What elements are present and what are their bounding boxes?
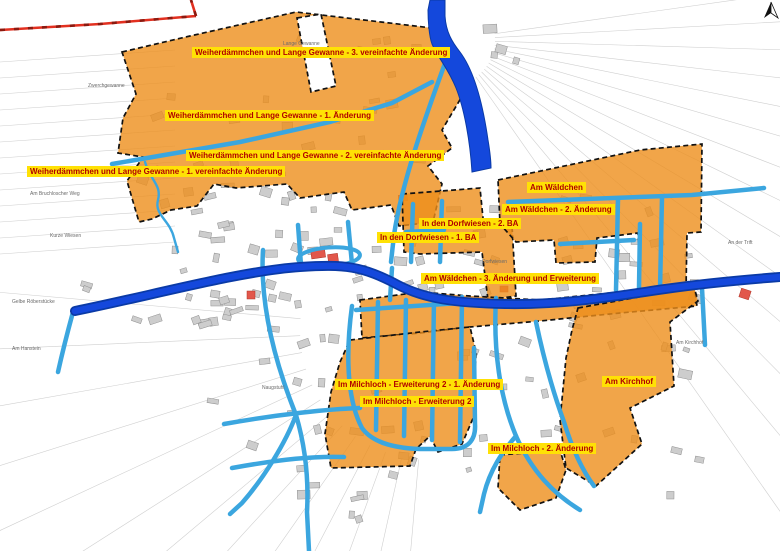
building	[694, 456, 704, 463]
place-label-kurze-wiesen: Kurze Wiesen	[50, 233, 81, 239]
building	[131, 316, 142, 324]
place-label-zwerchgewanne: Zwerchgewanne	[88, 83, 125, 89]
building	[210, 290, 220, 298]
zone-label-weiherdaemmchen-2-vereinfachte: Weiherdämmchen und Lange Gewanne - 2. ve…	[186, 150, 444, 161]
building	[388, 470, 398, 479]
zone-label-am-waeldchen-3: Am Wäldchen - 3. Änderung und Erweiterun…	[421, 273, 599, 284]
place-label-dorfwiesen: Dorfwiesen	[482, 259, 507, 265]
building	[491, 52, 498, 59]
building	[309, 482, 320, 488]
north-arrow-icon	[764, 2, 778, 18]
building	[518, 336, 531, 347]
building	[683, 347, 690, 353]
building	[463, 448, 471, 457]
building	[415, 256, 425, 266]
zone-label-weiherdaemmchen-3-vereinfachte: Weiherdämmchen und Lange Gewanne - 3. ve…	[192, 47, 450, 58]
building	[199, 231, 212, 239]
building	[313, 424, 321, 434]
building	[320, 334, 326, 342]
zone-label-am-kirchhof: Am Kirchhof	[602, 376, 656, 387]
building	[211, 237, 225, 243]
zone-label-dorfwiesen-1-ba: In den Dorfwiesen - 1. BA	[377, 232, 479, 243]
zone-label-am-waeldchen-2: Am Wäldchen - 2. Änderung	[502, 204, 615, 215]
place-label-bruchloscher-weg: Am Bruchloscher Weg	[30, 191, 80, 197]
building	[297, 338, 310, 349]
building	[325, 306, 332, 312]
building	[483, 24, 497, 33]
zone-am-waeldchen	[498, 144, 702, 290]
building	[355, 515, 363, 524]
building	[292, 377, 302, 386]
building	[394, 257, 407, 266]
building	[328, 334, 339, 344]
building	[678, 369, 693, 380]
building	[148, 314, 162, 325]
zone-label-weiherdaemmchen-1-aenderung: Weiherdämmchen und Lange Gewanne - 1. Än…	[165, 110, 374, 121]
zone-label-weiherdaemmchen-1-vereinfachte: Weiherdämmchen und Lange Gewanne - 1. ve…	[27, 166, 285, 177]
red-boundary-line	[0, 0, 196, 30]
zone-im-milchloch-2	[498, 450, 566, 510]
building	[512, 57, 519, 65]
zone-label-milchloch-2: Im Milchloch - 2. Änderung	[488, 443, 596, 454]
building	[248, 244, 260, 255]
building	[275, 230, 282, 238]
building	[246, 305, 259, 310]
building	[279, 292, 292, 302]
zone-label-milchloch-erw2: Im Milchloch - Erweiterung 2	[360, 396, 474, 407]
building	[618, 271, 626, 280]
building	[264, 279, 276, 290]
building	[334, 228, 342, 233]
building	[180, 268, 188, 274]
building	[349, 511, 355, 519]
place-label-an-der-trift: An der Trift	[728, 240, 752, 246]
place-label-am-kirchhof-klein: Am Kirchhof	[676, 340, 703, 346]
building	[333, 206, 347, 216]
building	[352, 276, 363, 284]
building	[466, 467, 472, 473]
building	[318, 378, 325, 387]
building	[213, 253, 220, 263]
building	[281, 197, 289, 205]
building	[667, 491, 674, 499]
building	[259, 186, 272, 198]
building	[185, 293, 192, 301]
building	[526, 377, 534, 382]
building	[246, 440, 258, 451]
building	[671, 446, 683, 454]
building	[311, 207, 317, 213]
building	[259, 358, 270, 365]
building	[268, 294, 277, 303]
building	[541, 389, 549, 399]
building	[350, 495, 364, 502]
zone-label-am-waeldchen: Am Wäldchen	[527, 182, 586, 193]
building	[479, 434, 487, 441]
building	[592, 287, 601, 292]
building	[294, 300, 301, 308]
building	[266, 250, 278, 257]
zone-label-dorfwiesen-2-ba: In den Dorfwiesen - 2. BA	[419, 218, 521, 229]
place-label-am-hanstein: Am Hanstein	[12, 346, 41, 352]
building	[372, 246, 381, 253]
building	[207, 398, 219, 404]
building	[541, 430, 552, 437]
building	[191, 208, 203, 215]
building	[319, 237, 333, 246]
zone-label-milchloch-erw2-1: Im Milchloch - Erweiterung 2 - 1. Änderu…	[335, 379, 503, 390]
zoning-map: Weiherdämmchen und Lange Gewanne - 3. ve…	[0, 0, 780, 551]
place-label-gelbe-roeberstuecke: Gelbe Röberstücke	[12, 299, 55, 305]
place-label-naugstuhl: Naugstuhl	[262, 385, 285, 391]
